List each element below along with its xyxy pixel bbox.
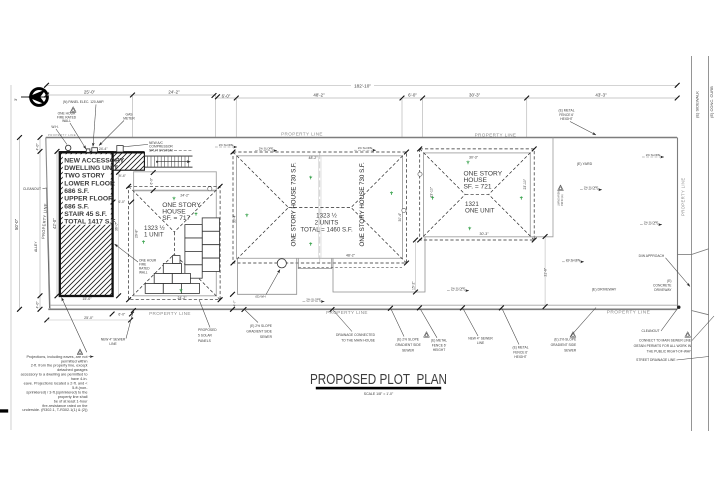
svg-text:15'-2": 15'-2": [412, 281, 416, 290]
svg-text:SEWER: SEWER: [564, 349, 577, 353]
svg-text:6'-0": 6'-0": [222, 93, 231, 98]
svg-text:30'-4": 30'-4": [398, 212, 402, 221]
svg-text:15'-0": 15'-0": [82, 297, 92, 301]
svg-text:UPPER FLOOR: UPPER FLOOR: [64, 196, 113, 203]
svg-text:23'-10": 23'-10": [430, 186, 434, 197]
svg-text:PROPERTY LINE: PROPERTY LINE: [281, 132, 323, 137]
svg-text:2% SLOPE: 2% SLOPE: [646, 153, 661, 157]
svg-text:686 S.F.: 686 S.F.: [64, 188, 89, 195]
svg-text:DRAINAGE CONNECTED: DRAINAGE CONNECTED: [336, 333, 376, 337]
svg-text:permitted within: permitted within: [61, 359, 88, 363]
svg-text:TWO STORY: TWO STORY: [64, 173, 105, 180]
svg-text:WALL: WALL: [139, 271, 148, 275]
svg-text:SEWER: SEWER: [402, 348, 415, 352]
svg-text:21'-6": 21'-6": [543, 267, 547, 276]
svg-text:METER: METER: [123, 116, 135, 120]
svg-text:ONE STORY HOUSE 730 S.F.: ONE STORY HOUSE 730 S.F.: [291, 162, 298, 247]
svg-text:25'-0": 25'-0": [84, 316, 94, 320]
svg-text:5 SOLAR: 5 SOLAR: [198, 333, 213, 337]
svg-text:underside. (R302.1, T-R302.1(1: underside. (R302.1, T-R302.1(1) & (2)): [22, 408, 88, 412]
svg-text:30'-4": 30'-4": [233, 214, 237, 223]
svg-text:50'-0": 50'-0": [14, 218, 19, 230]
svg-text:LINE: LINE: [477, 341, 485, 345]
svg-text:3': 3': [13, 98, 18, 101]
svg-text:2% SLOPE: 2% SLOPE: [306, 298, 321, 302]
svg-text:43'-3": 43'-3": [595, 93, 607, 98]
svg-text:GRADIENT SIDE: GRADIENT SIDE: [551, 343, 577, 347]
svg-text:PROPOSED: PROPOSED: [198, 328, 217, 332]
svg-text:CONCRETE: CONCRETE: [653, 283, 672, 287]
svg-text:SF. = 717: SF. = 717: [162, 215, 190, 222]
svg-text:TOTAL 1417 S.F.: TOTAL 1417 S.F.: [64, 219, 116, 226]
svg-text:DWELLING UNIT: DWELLING UNIT: [64, 165, 118, 172]
svg-text:686 S.F.: 686 S.F.: [64, 203, 89, 210]
svg-text:W.H.: W.H.: [51, 125, 58, 129]
svg-text:36'-0": 36'-0": [115, 222, 119, 231]
svg-text:30'-3": 30'-3": [480, 232, 490, 236]
svg-text:(E) 2% SLOPE: (E) 2% SLOPE: [397, 337, 420, 341]
svg-text:detached garages: detached garages: [57, 368, 88, 372]
svg-text:CLEANOUT: CLEANOUT: [23, 187, 41, 191]
svg-text:24'-2": 24'-2": [180, 194, 190, 198]
svg-text:2% SLOPE: 2% SLOPE: [451, 287, 466, 291]
svg-text:WALL: WALL: [62, 119, 71, 123]
svg-text:6'-0": 6'-0": [118, 312, 126, 316]
svg-text:6'-0": 6'-0": [119, 200, 126, 204]
svg-text:23'-10": 23'-10": [523, 178, 527, 189]
svg-text:(E) WH: (E) WH: [255, 295, 265, 299]
svg-text:FENCE 6': FENCE 6': [432, 343, 447, 347]
svg-text:ONE STORY HOUSE 730 S.F.: ONE STORY HOUSE 730 S.F.: [359, 162, 366, 247]
svg-text:STREET DRAINAGE LINE: STREET DRAINAGE LINE: [636, 358, 676, 362]
svg-text:SEWER: SEWER: [260, 335, 273, 339]
svg-text:SCALE 1/8" = 1'-0": SCALE 1/8" = 1'-0": [364, 392, 394, 396]
svg-text:(E) CONC. CURB: (E) CONC. CURB: [709, 86, 714, 118]
svg-text:fire-resistance rated on the: fire-resistance rated on the: [42, 404, 87, 408]
svg-text:accessory to a dwelling are pe: accessory to a dwelling are permitted to: [21, 373, 88, 377]
svg-text:(E) SIDEWALK: (E) SIDEWALK: [695, 91, 700, 118]
svg-text:LINE: LINE: [109, 342, 117, 346]
svg-text:HEIGHT: HEIGHT: [433, 348, 445, 352]
svg-text:SF. = 721: SF. = 721: [464, 184, 492, 191]
svg-text:24'-4": 24'-4": [99, 147, 108, 151]
svg-text:24'-2": 24'-2": [168, 90, 180, 95]
svg-text:CONNECT TO MAIN SEWER LINE: CONNECT TO MAIN SEWER LINE: [639, 339, 692, 343]
svg-text:ALLEY: ALLEY: [34, 241, 38, 252]
svg-text:(E) METAL: (E) METAL: [512, 346, 528, 350]
svg-text:1 UNIT: 1 UNIT: [144, 231, 164, 238]
svg-text:D/W APPROACH: D/W APPROACH: [639, 254, 665, 258]
svg-text:748 SF (E): 748 SF (E): [561, 194, 564, 206]
svg-text:30'-3": 30'-3": [469, 93, 481, 98]
svg-text:29'-8": 29'-8": [134, 229, 138, 238]
svg-text:(E) METAL: (E) METAL: [431, 339, 447, 343]
svg-text:CLEANOUT: CLEANOUT: [642, 329, 660, 333]
svg-text:PROPERTY LINE: PROPERTY LINE: [681, 177, 686, 216]
svg-text:(E) 2% SLOPE: (E) 2% SLOPE: [250, 324, 273, 328]
svg-text:48'-2": 48'-2": [313, 93, 325, 98]
svg-text:24'-2": 24'-2": [178, 296, 188, 300]
svg-text:25'-0": 25'-0": [84, 90, 96, 95]
svg-text:DRIVEWAY: DRIVEWAY: [654, 288, 672, 292]
svg-text:Projections, including eaves,: Projections, including eaves, are not: [27, 355, 89, 359]
svg-text:PROPERTY LINE: PROPERTY LINE: [149, 311, 191, 316]
svg-text:PROPOSED PLOT PLAN: PROPOSED PLOT PLAN: [310, 371, 447, 388]
svg-text:4'-0": 4'-0": [36, 301, 40, 309]
svg-text:PROPERTY LINE: PROPERTY LINE: [326, 310, 368, 315]
svg-text:SPLIT SYSTEM: SPLIT SYSTEM: [149, 148, 173, 152]
svg-text:2% SLOPE: 2% SLOPE: [358, 146, 373, 150]
svg-text:48'-2": 48'-2": [346, 253, 356, 257]
svg-text:6'-0": 6'-0": [149, 177, 153, 184]
svg-text:2% SLOPE: 2% SLOPE: [566, 258, 581, 262]
svg-text:5-ft.(non-: 5-ft.(non-: [72, 386, 88, 390]
svg-text:have 4-in.: have 4-in.: [71, 377, 88, 381]
svg-text:2% SLOPE: 2% SLOPE: [584, 186, 599, 190]
svg-text:4'-7": 4'-7": [232, 300, 236, 306]
svg-text:PROPERTY LINE: PROPERTY LINE: [607, 310, 650, 316]
svg-text:(N) PANEL ELEC. 120 AMP.: (N) PANEL ELEC. 120 AMP.: [63, 100, 104, 104]
svg-text:GRADIENT SIDE: GRADIENT SIDE: [395, 343, 421, 347]
svg-text:STAIR 45 S.F.: STAIR 45 S.F.: [64, 211, 107, 218]
svg-text:(E): (E): [667, 279, 671, 283]
svg-text:(E) DRIVEWAY: (E) DRIVEWAY: [592, 287, 617, 291]
svg-text:182'-10": 182'-10": [354, 83, 371, 88]
svg-text:(E) METAL: (E) METAL: [558, 108, 574, 112]
svg-text:eave. Projections located ≥ 2-: eave. Projections located ≥ 2-ft. and <: [24, 382, 89, 386]
svg-text:THE PUBLIC RIGHT-OF-WAY: THE PUBLIC RIGHT-OF-WAY: [647, 350, 692, 354]
svg-text:30'-3": 30'-3": [469, 156, 479, 160]
svg-text:2% SLOPE: 2% SLOPE: [644, 221, 659, 225]
svg-text:TO THE MAIN HOUSE: TO THE MAIN HOUSE: [341, 338, 376, 342]
svg-text:FENCE 6': FENCE 6': [559, 113, 574, 117]
svg-text:2% SLOPE: 2% SLOPE: [219, 143, 234, 147]
svg-text:(E) YARD: (E) YARD: [577, 162, 593, 166]
svg-text:42'-0": 42'-0": [52, 218, 57, 229]
svg-text:LOWER FLOOR: LOWER FLOOR: [64, 180, 115, 187]
svg-text:HEIGHT: HEIGHT: [514, 355, 526, 359]
svg-text:property line shall: property line shall: [58, 395, 88, 399]
svg-text:6'-0": 6'-0": [408, 93, 417, 98]
svg-text:4'-0": 4'-0": [36, 143, 40, 151]
svg-text:ONE UNIT: ONE UNIT: [465, 208, 495, 215]
svg-text:FENCE 6': FENCE 6': [513, 350, 528, 354]
svg-text:(E) 2% SLOPE: (E) 2% SLOPE: [554, 338, 577, 342]
svg-text:be of at least 1-hour: be of at least 1-hour: [54, 399, 89, 403]
svg-text:2% SLOPE: 2% SLOPE: [259, 147, 274, 151]
svg-text:PROPERTY LINE: PROPERTY LINE: [475, 132, 517, 137]
svg-text:NEW ACCESSORY: NEW ACCESSORY: [64, 157, 124, 164]
svg-text:OBTAIN PERMITS FOR ALL WORK IN: OBTAIN PERMITS FOR ALL WORK IN: [634, 344, 692, 348]
svg-text:48'-2": 48'-2": [309, 156, 319, 160]
svg-text:2-ft. from the property line,: 2-ft. from the property line, except: [31, 364, 89, 368]
svg-text:PANELS: PANELS: [198, 339, 212, 343]
svg-text:TOTAL = 1460 S.F.: TOTAL = 1460 S.F.: [300, 227, 353, 234]
svg-text:PROPERTY LINE: PROPERTY LINE: [48, 133, 76, 137]
svg-text:2 UNITS: 2 UNITS: [315, 219, 339, 226]
svg-text:HEIGHT: HEIGHT: [560, 117, 572, 121]
svg-text:GRADIENT SIDE: GRADIENT SIDE: [246, 329, 272, 333]
svg-text:sprinklered) / 3-ft.(sprinkler: sprinklered) / 3-ft.(sprinklered) to the: [26, 390, 87, 394]
svg-text:9'-4": 9'-4": [119, 174, 127, 178]
